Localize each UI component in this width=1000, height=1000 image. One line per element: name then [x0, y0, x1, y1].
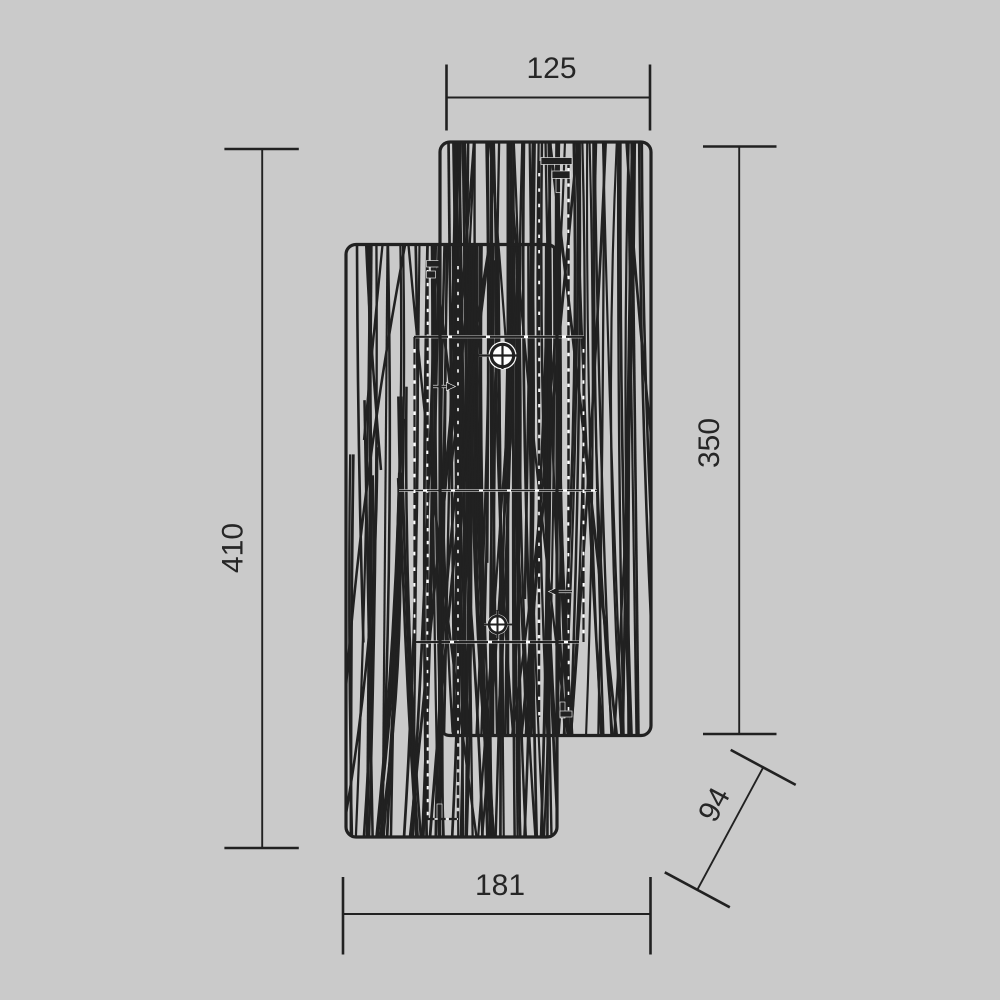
- svg-text:125: 125: [526, 52, 576, 85]
- svg-text:181: 181: [475, 869, 525, 902]
- svg-text:350: 350: [693, 418, 726, 468]
- svg-text:410: 410: [217, 523, 250, 573]
